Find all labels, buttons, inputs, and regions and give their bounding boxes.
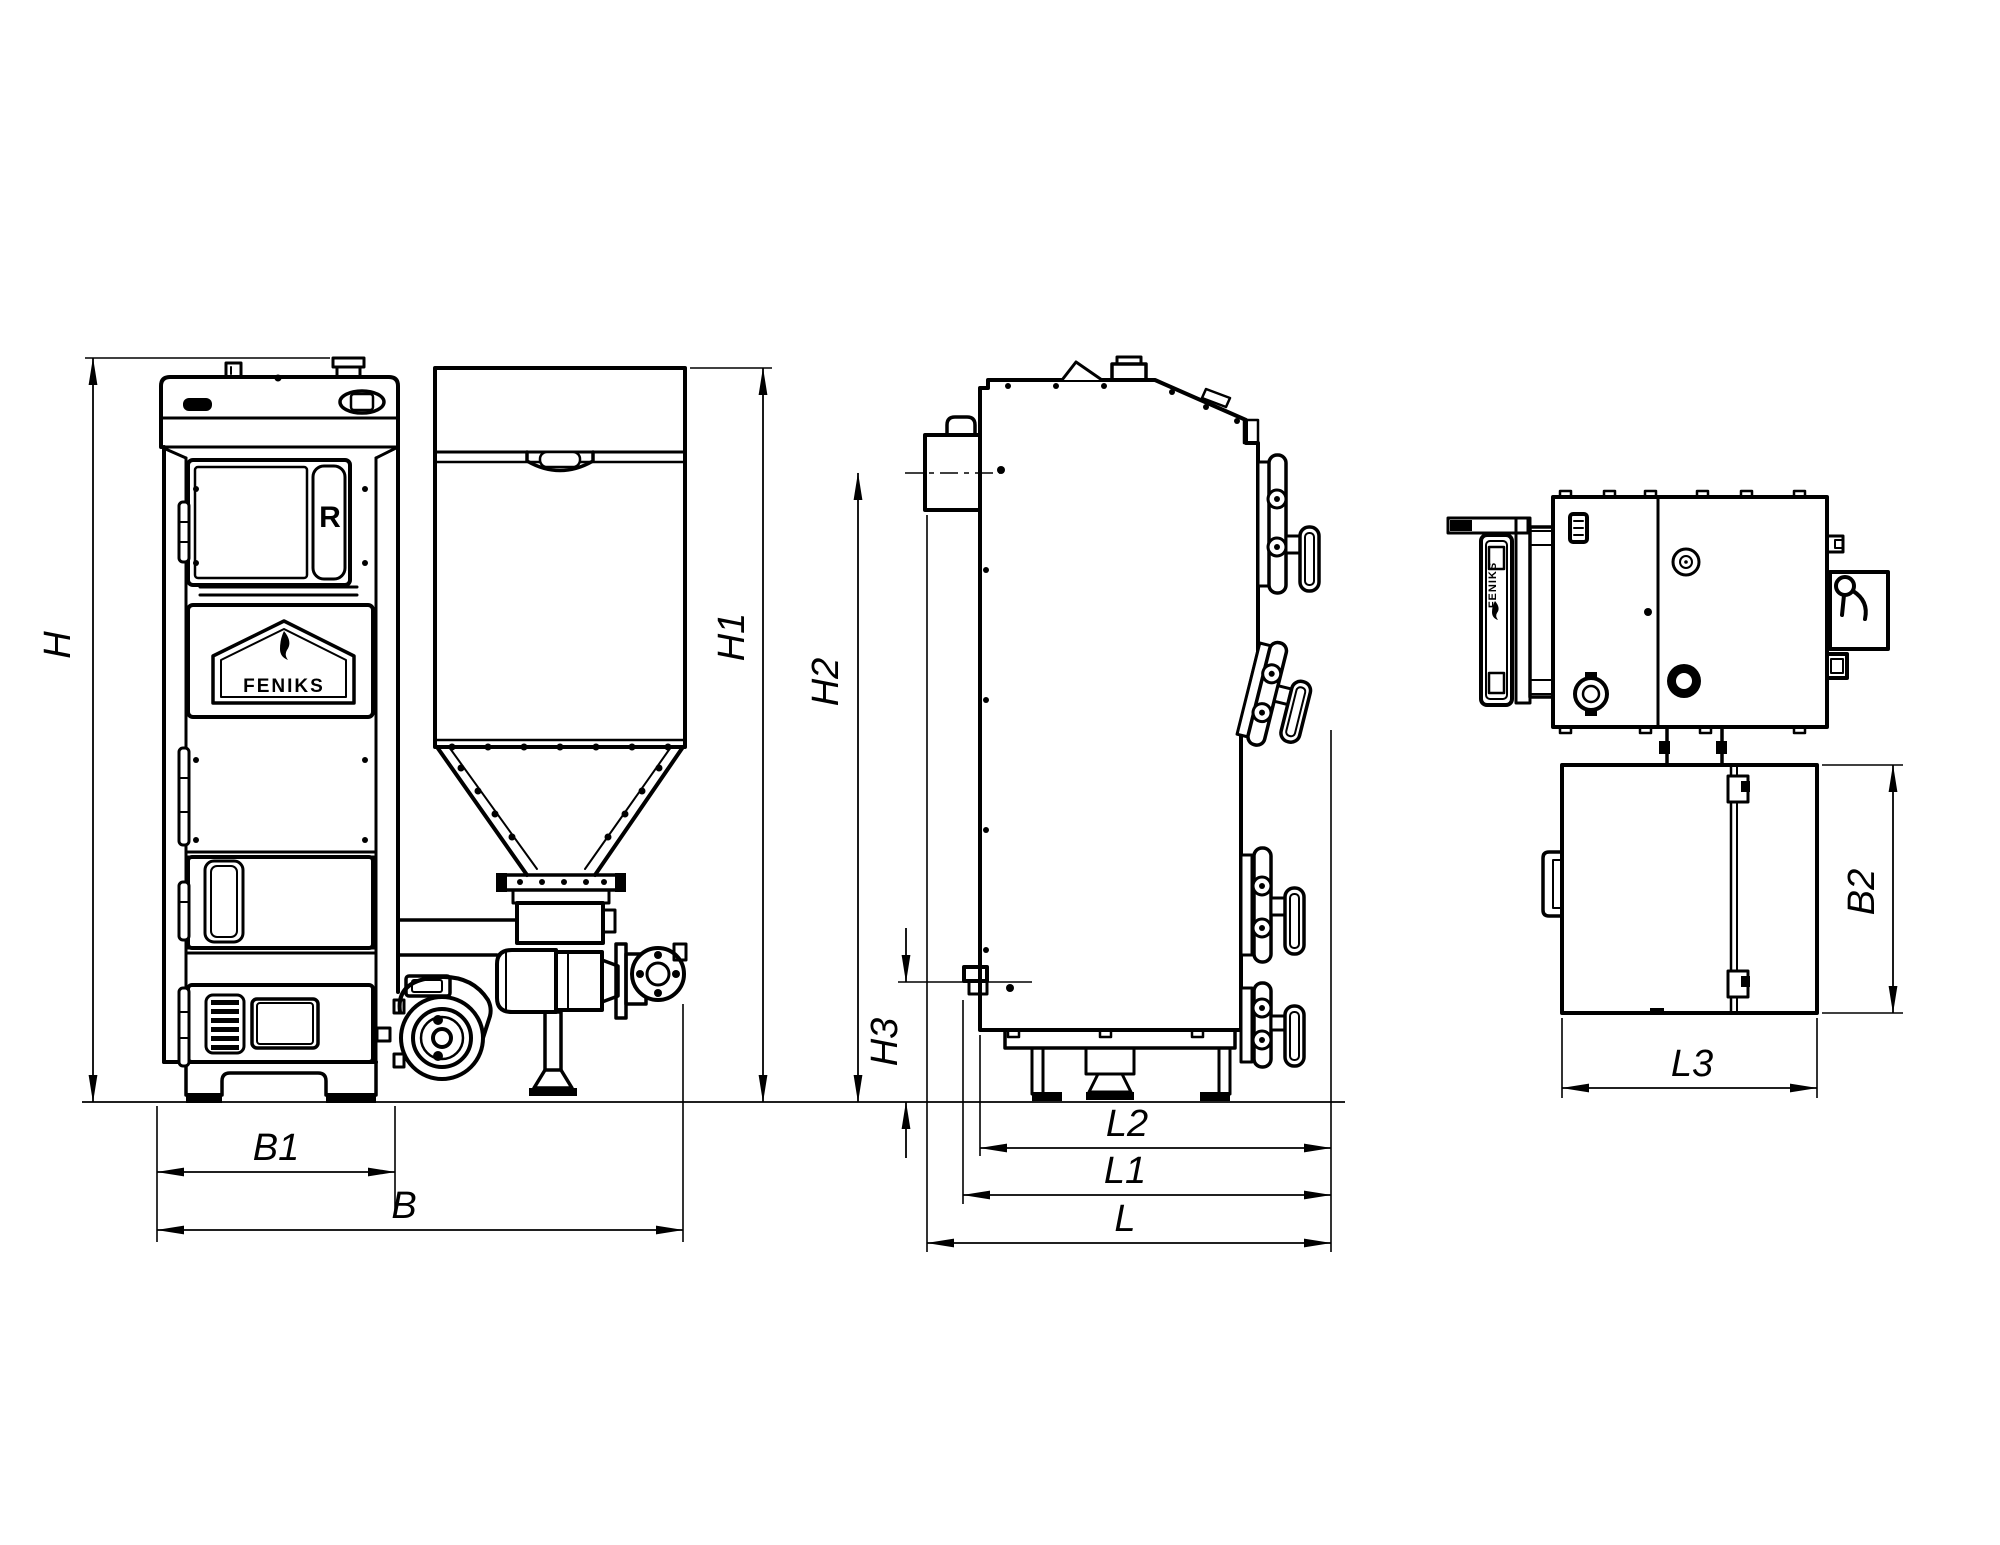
door-hinges (179, 486, 368, 1066)
hinge-cluster-upper (1236, 638, 1321, 755)
dimension-H3: H3 (864, 928, 1032, 1158)
dimension-H1-label: H1 (711, 613, 753, 662)
hinge-cluster-lower (1241, 983, 1304, 1067)
top-door: FENIKS (1448, 518, 1553, 705)
flue-fan (394, 976, 491, 1079)
dimension-B-label: B (391, 1185, 416, 1227)
side-base (1005, 1030, 1235, 1101)
damper-lever (1836, 577, 1854, 595)
top-view: FENIKS (1448, 491, 1903, 1098)
dimension-L3-label: L3 (1671, 1043, 1713, 1085)
dimension-B1: B1 (157, 1106, 395, 1242)
upper-door: R (188, 460, 357, 595)
side-latch (377, 1028, 390, 1041)
dimension-L2-label: L2 (1106, 1103, 1148, 1145)
dimension-B2: B2 (1822, 765, 1903, 1013)
top-cap (1112, 364, 1146, 380)
dimension-B1-label: B1 (253, 1127, 299, 1169)
top-hopper (1543, 727, 1817, 1014)
feeder-housing (517, 903, 603, 943)
fire-door: FENIKS (188, 605, 373, 717)
hinge-cluster-top (1258, 455, 1319, 593)
top-door-brand: FENIKS (1487, 562, 1499, 608)
side-view: H2 H3 L2 L1 L (805, 357, 1331, 1252)
dimension-H1: H1 (690, 368, 772, 1102)
vent-slot (183, 398, 212, 411)
boiler-dimension-drawing: R FENIKS (0, 0, 2000, 1545)
flue-outlet (905, 417, 1005, 510)
dimension-B2-label: B2 (1841, 869, 1883, 915)
dimension-H3-label: H3 (864, 1018, 906, 1067)
flame-logo (280, 631, 289, 660)
dimension-H-label: H (37, 631, 79, 659)
dimension-L1-label: L1 (1104, 1150, 1146, 1192)
pellet-hopper (435, 368, 685, 875)
boiler-base (186, 1062, 376, 1103)
regulator-marking: R (319, 501, 341, 534)
side-body (980, 380, 1258, 1030)
drain-outlet (964, 967, 1014, 994)
top-boiler (1553, 491, 1827, 733)
bolted-flange (1575, 678, 1607, 710)
side-top-details (1005, 357, 1240, 424)
dimension-H2: H2 (805, 473, 858, 1102)
front-view: R FENIKS (37, 358, 772, 1242)
dimension-L2: L2 (980, 730, 1331, 1252)
dimension-L3: L3 (1562, 1018, 1817, 1098)
ash-door (188, 985, 390, 1062)
sensor-stub (226, 363, 241, 377)
top-flue-damper (1827, 536, 1888, 678)
lower-door (186, 852, 376, 953)
technical-drawing-sheet: R FENIKS (0, 0, 2000, 1545)
dimension-H2-label: H2 (805, 658, 847, 707)
hinge-cluster-middle (1241, 848, 1304, 962)
dimension-L-label: L (1114, 1198, 1135, 1240)
front-door-brand: FENIKS (243, 676, 325, 697)
boiler-body (161, 447, 398, 1062)
support-leg (545, 1012, 561, 1070)
boiler-top-panel (161, 358, 398, 447)
